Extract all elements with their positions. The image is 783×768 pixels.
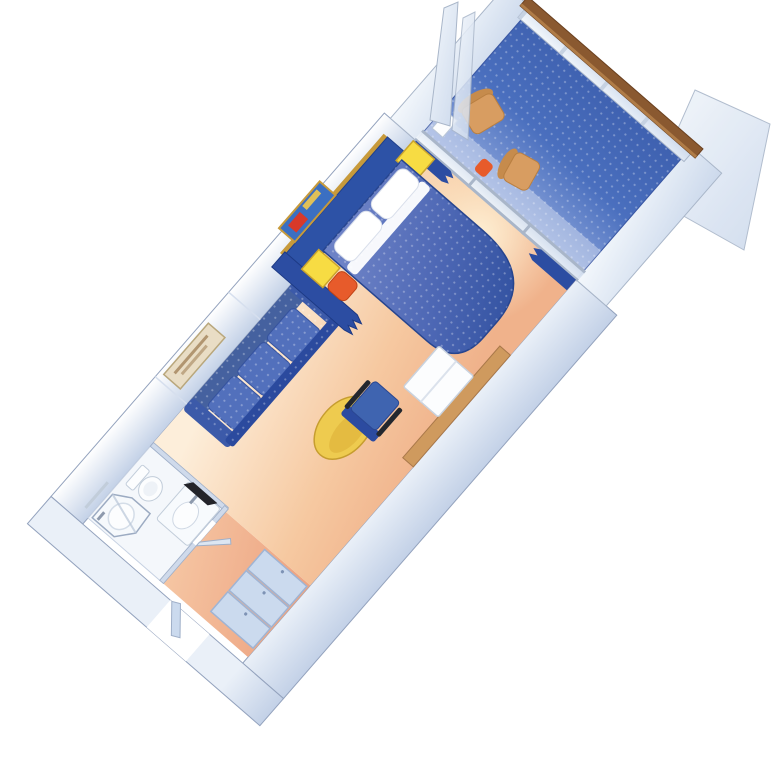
floorplan-svg: Balcony stateroom - 3D cutaway floor pla… bbox=[0, 0, 783, 768]
cabin-group bbox=[24, 0, 736, 726]
stateroom-floorplan-image: Balcony stateroom - 3D cutaway floor pla… bbox=[0, 0, 783, 768]
